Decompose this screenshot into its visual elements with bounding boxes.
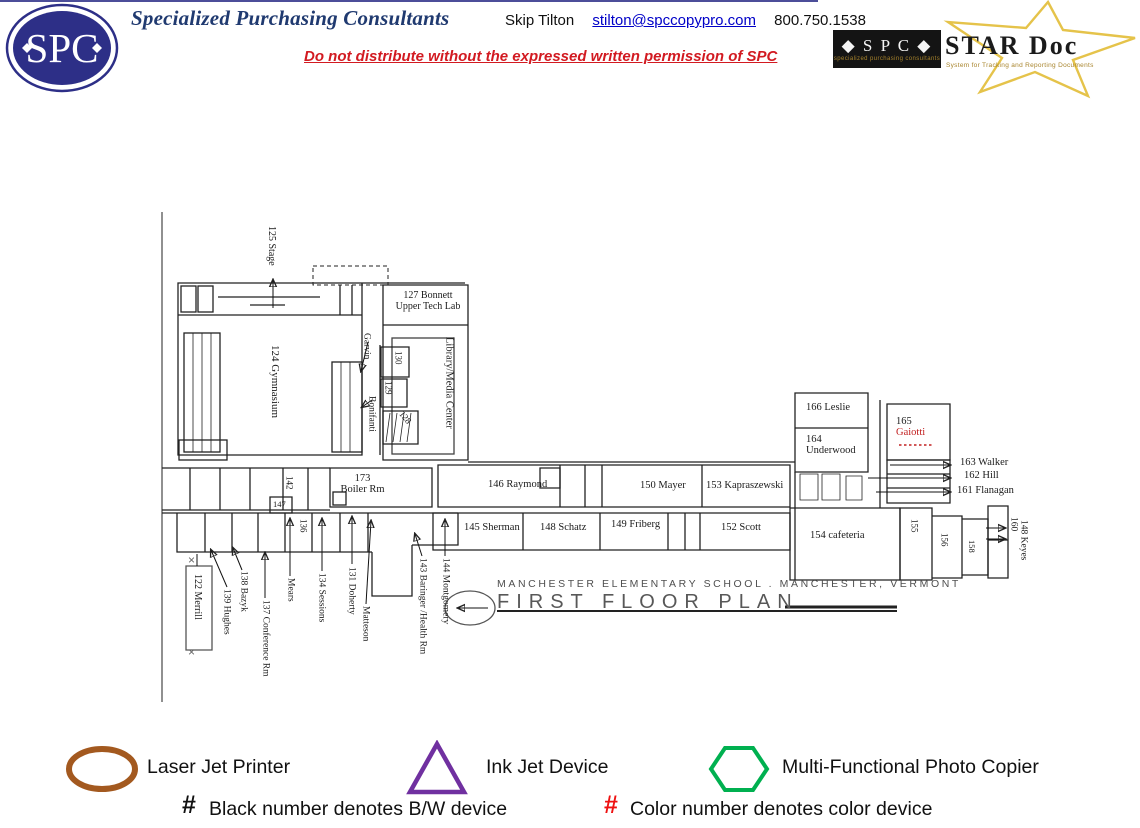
room-label-hughes: 139 Hughes bbox=[221, 589, 231, 635]
room-label-underwood-line2: Underwood bbox=[806, 445, 856, 456]
room-label-gaiotti: 165 Gaiotti bbox=[896, 416, 925, 439]
legend-copier-label: Multi-Functional Photo Copier bbox=[782, 756, 1039, 779]
room-label-walker: 163 Walker bbox=[960, 457, 1008, 468]
room-label-doherty: 131 Doherty bbox=[346, 567, 356, 615]
photo-copier-symbol bbox=[707, 745, 771, 793]
room-label-boiler: 173 Boiler Rm bbox=[325, 473, 400, 496]
room-label-gaiotti-number: 165 bbox=[896, 416, 925, 427]
legend-bw-note: Black number denotes B/W device bbox=[209, 798, 507, 821]
room-label-garvin: Garvin bbox=[361, 333, 371, 359]
room-label-142: 142 bbox=[284, 476, 294, 490]
room-label-kapraszewski: 153 Kapraszewski bbox=[706, 480, 783, 491]
room-label-hill: 162 Hill bbox=[964, 470, 999, 481]
room-label-montgomery: 144 Montgomery bbox=[440, 558, 450, 624]
plan-title: FIRST FLOOR PLAN bbox=[497, 591, 799, 614]
room-label-underwood-line1: 164 bbox=[806, 434, 856, 445]
room-label-147: 147 bbox=[273, 500, 286, 509]
room-label-merrill: 122 Merrill bbox=[191, 574, 202, 620]
room-label-baringer: 143 Baringer /Health Rm bbox=[417, 558, 427, 654]
plan-leader-arrows bbox=[197, 280, 1005, 604]
room-label-friberg: 149 Friberg bbox=[611, 519, 660, 530]
room-label-raymond: 146 Raymond bbox=[488, 479, 547, 490]
laser-jet-symbol bbox=[62, 744, 142, 794]
room-label-129: 129 bbox=[383, 381, 393, 395]
room-label-bonnett: 127 Bonnett Upper Tech Lab bbox=[390, 291, 466, 313]
room-label-stage: 125 Stage bbox=[265, 226, 276, 266]
room-label-matteson: Matteson bbox=[360, 606, 370, 641]
room-label-underwood: 164 Underwood bbox=[806, 434, 856, 457]
room-label-boiler-line2: Boiler Rm bbox=[325, 484, 400, 495]
room-label-bonnett-line2: Upper Tech Lab bbox=[390, 302, 466, 313]
room-label-gymnasium: 124 Gymnasium bbox=[268, 345, 280, 418]
room-label-bazyk: 138 Bazyk bbox=[238, 571, 248, 612]
room-label-mayer: 150 Mayer bbox=[640, 480, 686, 491]
room-label-keyes: 148 Keyes bbox=[1018, 520, 1028, 560]
ink-jet-symbol bbox=[405, 740, 469, 797]
red-hash-symbol: # bbox=[604, 791, 618, 820]
room-label-sherman: 145 Sherman bbox=[464, 522, 520, 533]
legend-color-note: Color number denotes color device bbox=[630, 798, 932, 821]
room-label-160: 160 bbox=[1008, 517, 1018, 531]
legend-laser-label: Laser Jet Printer bbox=[147, 756, 290, 779]
floorplan-drawing: × × bbox=[0, 0, 1140, 828]
room-label-schatz: 148 Schatz bbox=[540, 522, 586, 533]
room-label-130: 130 bbox=[393, 351, 403, 365]
room-label-boiler-line1: 173 bbox=[325, 473, 400, 484]
room-label-156: 156 bbox=[939, 533, 949, 547]
room-label-cafeteria: 154 cafeteria bbox=[810, 530, 865, 541]
room-label-bonifanti: Bonifanti bbox=[366, 396, 376, 432]
room-label-mears: Mears bbox=[285, 578, 295, 602]
room-label-scott: 152 Scott bbox=[721, 522, 761, 533]
room-label-library: Library/Media Center bbox=[443, 337, 454, 429]
legend-inkjet-label: Ink Jet Device bbox=[486, 756, 608, 779]
room-label-conference: 137 Conference Rm bbox=[260, 600, 270, 677]
room-label-sessions: 134 Sessions bbox=[316, 573, 326, 622]
plan-walls: × × bbox=[162, 212, 1008, 702]
room-label-flanagan: 161 Flanagan bbox=[957, 485, 1014, 496]
black-hash-symbol: # bbox=[182, 791, 196, 820]
leader-x-mark: × bbox=[188, 645, 195, 659]
room-label-gaiotti-name: Gaiotti bbox=[896, 427, 925, 438]
room-label-136: 136 bbox=[298, 519, 308, 533]
room-label-158: 158 bbox=[967, 540, 976, 553]
plan-school-title: MANCHESTER ELEMENTARY SCHOOL . MANCHESTE… bbox=[497, 578, 961, 590]
room-label-155: 155 bbox=[909, 519, 919, 533]
room-label-leslie: 166 Leslie bbox=[806, 402, 850, 413]
document-page: SPC Specialized Purchasing Consultants S… bbox=[0, 0, 1140, 828]
leader-x-mark: × bbox=[188, 553, 195, 567]
